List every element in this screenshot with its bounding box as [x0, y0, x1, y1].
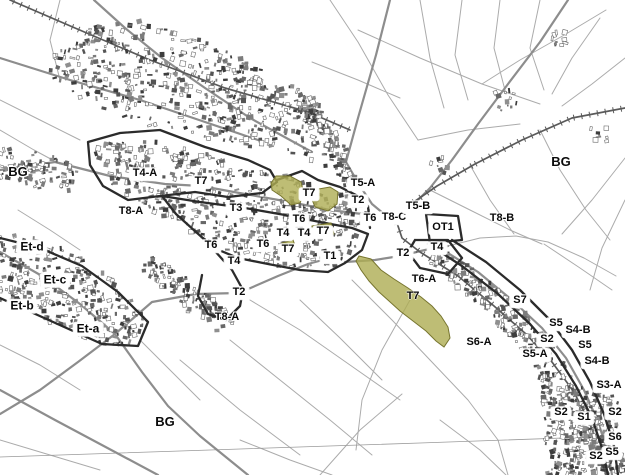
map-canvas — [0, 0, 625, 475]
zoning-map: BGT4-AT7T8-AT3T6T6T6T4T4T4T7T1T2T8-ABGEt… — [0, 0, 625, 475]
